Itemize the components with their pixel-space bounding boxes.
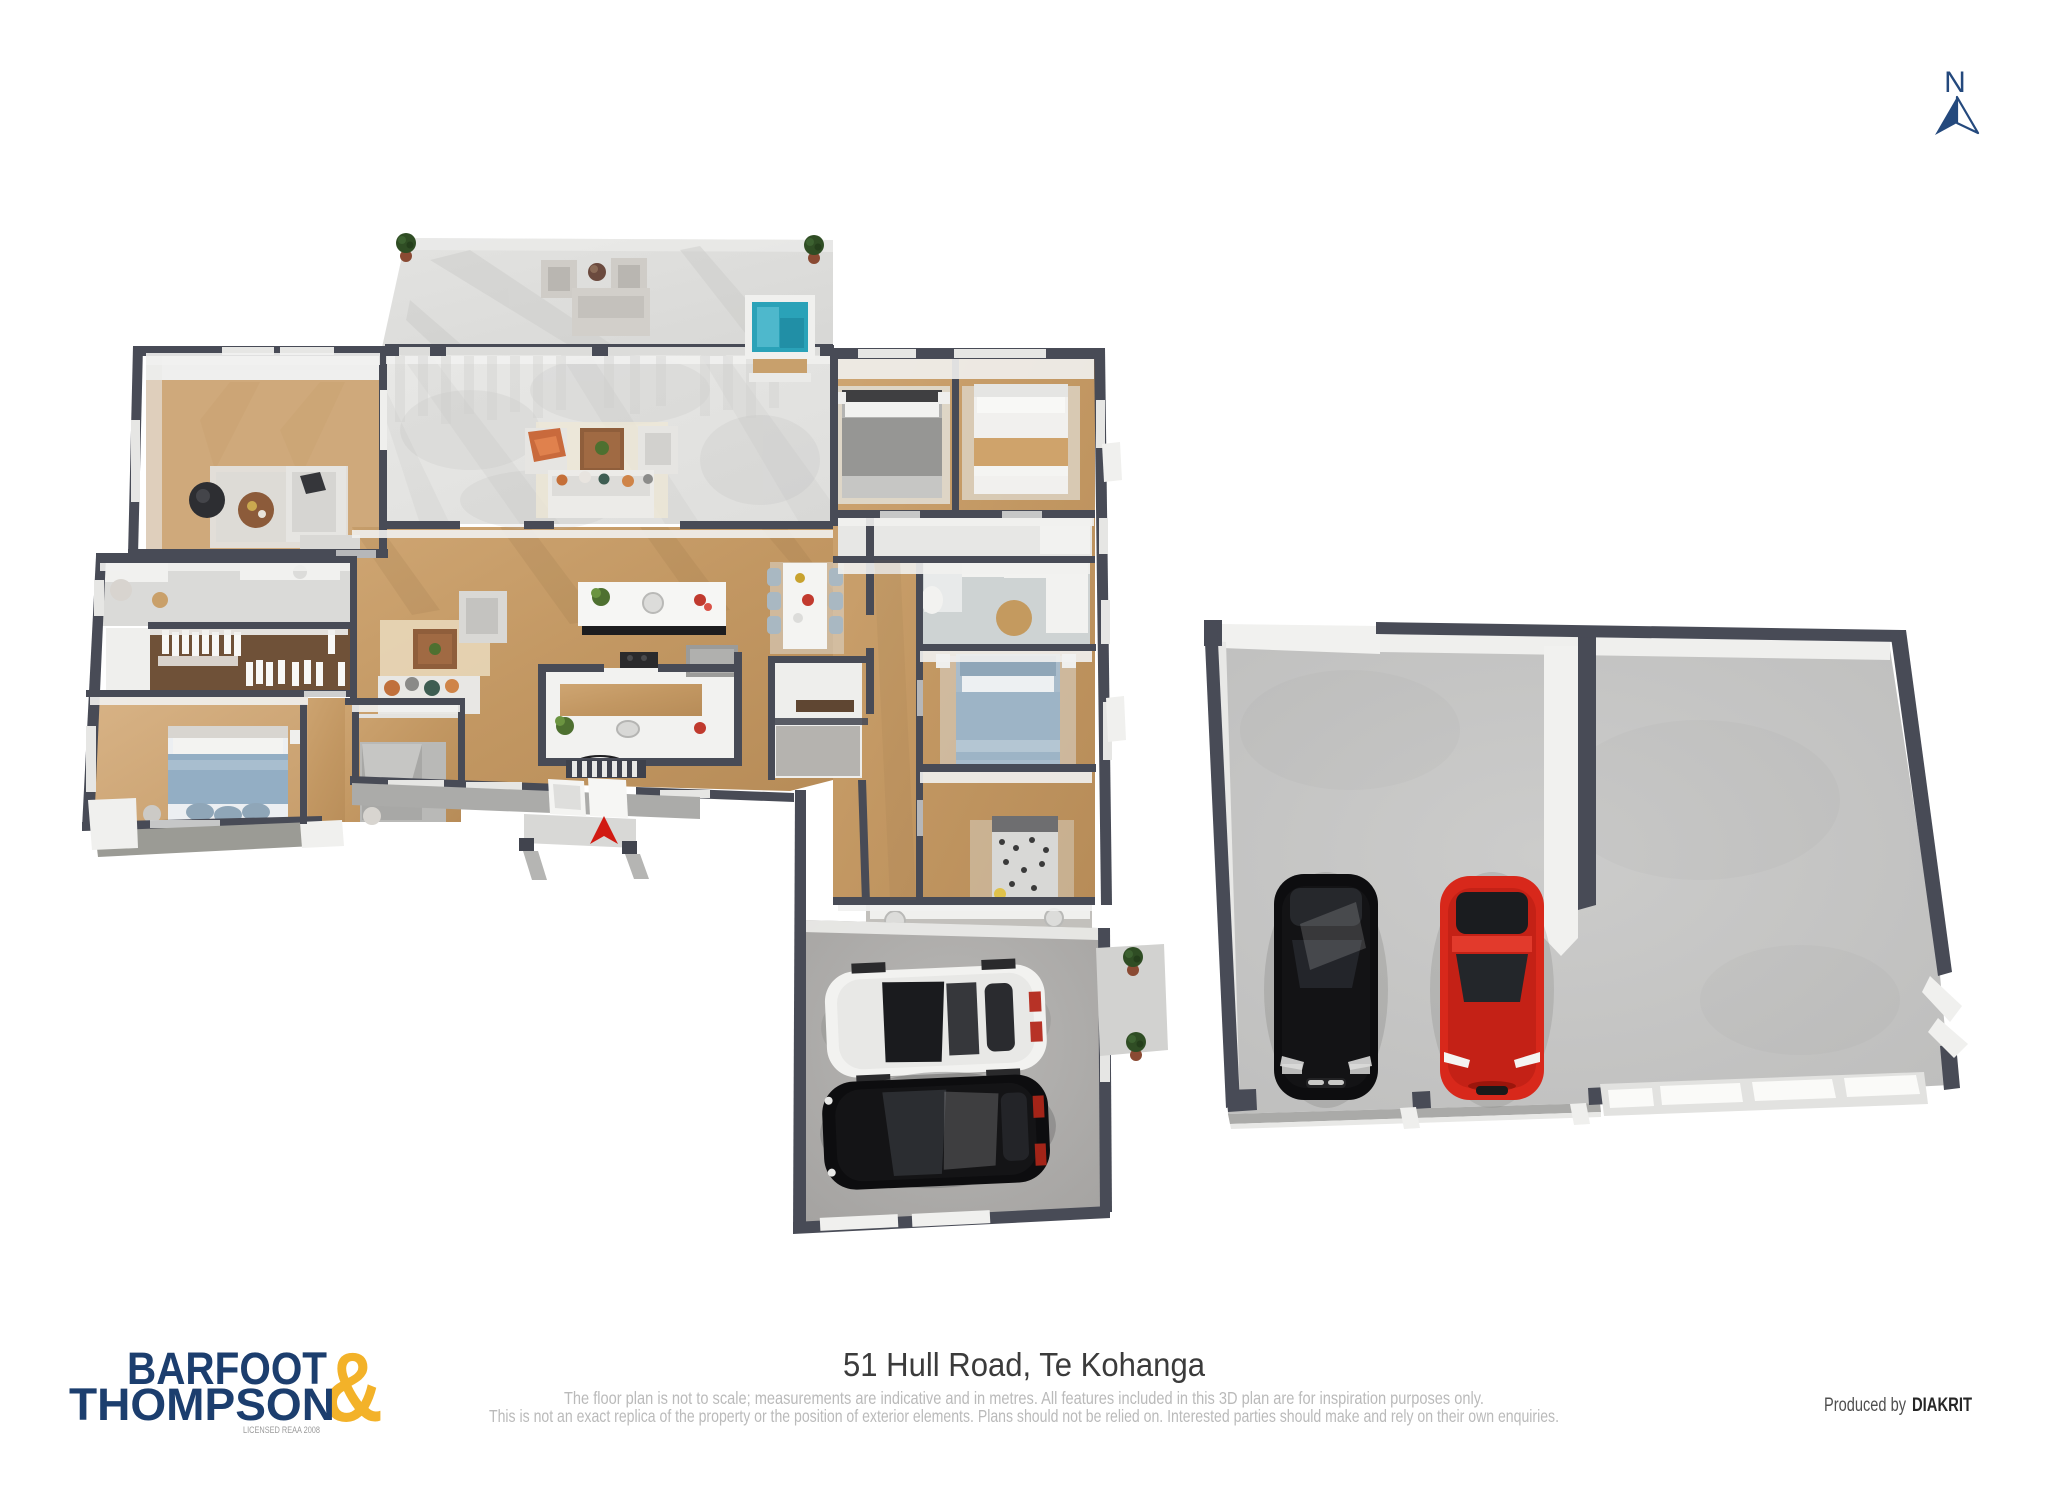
- svg-text:LICENSED REAA 2008: LICENSED REAA 2008: [243, 1425, 320, 1435]
- svg-text:Produced by: Produced by: [1824, 1395, 1906, 1416]
- svg-text:The floor plan is not to scale: The floor plan is not to scale; measurem…: [564, 1388, 1484, 1408]
- svg-text:DIAKRIT: DIAKRIT: [1912, 1394, 1972, 1416]
- svg-text:This is not an exact replica o: This is not an exact replica of the prop…: [489, 1406, 1559, 1426]
- svg-text:N: N: [1944, 66, 1966, 99]
- svg-text:51 Hull Road, Te Kohanga: 51 Hull Road, Te Kohanga: [843, 1346, 1206, 1383]
- svg-text:THOMPSON: THOMPSON: [69, 1379, 335, 1430]
